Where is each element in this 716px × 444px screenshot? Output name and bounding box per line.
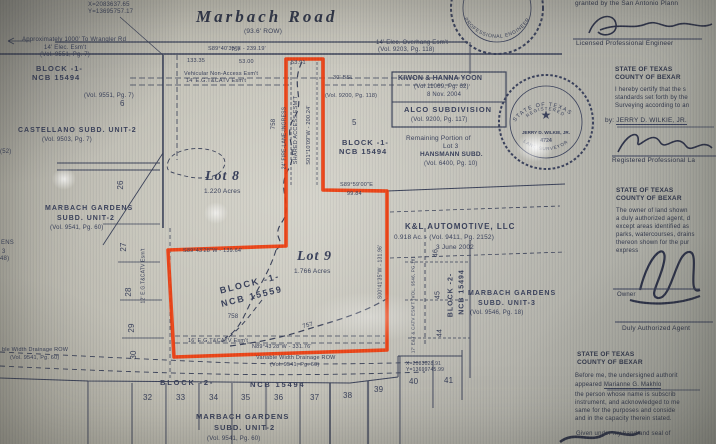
right-bearing: S00°41'35"W - 131.96' xyxy=(378,245,383,299)
lot-26-number: 26 xyxy=(117,180,125,189)
drainage-left-vol: (Vol. 9541, Pg. 60) xyxy=(10,356,59,362)
mg2-left-line1: MARBACH GARDENS xyxy=(45,205,133,212)
registered-surveyor-caption: Registered Professional La xyxy=(612,158,695,165)
remaining-line3: HANSMANN SUBD. xyxy=(420,152,483,159)
mg2-left-vol: (Vol. 9541, Pg. 60) xyxy=(50,225,104,231)
notch-dim: 99.84 xyxy=(347,192,362,198)
mid-bearing: S89°43'28"W - 139.64' xyxy=(183,249,242,255)
esmt-12-label: 12' E.G.T&CATV Esm't xyxy=(141,249,146,304)
lot-27-number: 27 xyxy=(120,242,128,251)
road-name: Marbach Road xyxy=(196,8,337,26)
lot-6-number: 6 xyxy=(120,100,125,108)
glare-spot-seal xyxy=(516,132,554,162)
road-row-width: (93.6' ROW) xyxy=(244,29,282,36)
owner-para-line1: The owner of land shown xyxy=(616,208,688,214)
surveyor-signature xyxy=(618,135,712,152)
wilkie-name: JERRY D. WILKIE, JR. xyxy=(616,117,687,125)
glare-spot-center xyxy=(204,202,228,224)
bsl-note: 30' BSL xyxy=(333,76,354,82)
remaining-line1: Remaining Portion of xyxy=(406,136,471,143)
block1-right-line2: NCB 15494 xyxy=(339,148,387,156)
mg3-line2: SUBD. UNIT-3 xyxy=(478,300,536,307)
owner-para-line5: thereon shown for the pur xyxy=(616,240,689,246)
block1-left-vol: (Vol. 9551, Pg. 7) xyxy=(84,93,134,99)
lot-30-number: 30 xyxy=(130,350,138,359)
notary-line3: the person whose name is subscrib xyxy=(575,392,676,398)
edge-fragment-4: 48) xyxy=(0,256,9,262)
by-label: by: xyxy=(605,117,614,124)
engineer-seal: REGISTERED PROFESSIONAL ENGINEER xyxy=(451,0,543,54)
certify-line1: I hereby certify that the s xyxy=(615,87,686,93)
castellano-vol: (Vol. 9503, Pg. 7) xyxy=(42,137,92,143)
block2-right-line1: BLOCK -2- xyxy=(447,273,454,317)
owner-signature xyxy=(630,251,700,303)
remaining-vol: (Vol. 6400, Pg. 10) xyxy=(424,161,478,167)
notary-line4: instrument, and acknowledged to me xyxy=(575,400,680,406)
certify-line3: Surveying according to an xyxy=(615,103,689,109)
block1-right-line1: BLOCK -1- xyxy=(342,139,389,147)
yoon-name: KIWON & HANNA YOON xyxy=(398,75,482,82)
owner-para-line6: express xyxy=(616,248,638,254)
owner-para-line2: a duly authorized agent, d xyxy=(616,216,690,222)
lot-34-number: 34 xyxy=(209,394,218,402)
vehicular-non-access-note: Vehicular Non-Access Esm't xyxy=(184,72,258,78)
notary-line5: same for the purposes and conside xyxy=(575,408,675,414)
lot-5-number: 5 xyxy=(352,119,357,127)
shared-access-esmt: SHARED ACCESS ESM'T xyxy=(294,96,300,164)
coord-top-y: Y=13695757.17 xyxy=(88,9,133,15)
lot8-acres: 1.220 Acres xyxy=(204,189,241,196)
block1-left-line1: BLOCK -1- xyxy=(36,65,83,73)
kl-date: 3 June 2002 xyxy=(436,245,474,252)
state-of-texas-3: STATE OF TEXAS xyxy=(577,352,634,359)
alco-vol: (Vol. 9200, Pg. 117) xyxy=(411,117,468,123)
glare-streak-bottom xyxy=(310,292,430,342)
owner-para-line4: parks, watercourses, drains xyxy=(616,232,695,238)
block2-bottom-line2: NCB 15494 xyxy=(250,381,305,389)
lot-45-number: 45 xyxy=(434,291,441,299)
state-of-texas-2: STATE OF TEXAS xyxy=(616,188,673,195)
state-of-texas-1: STATE OF TEXAS xyxy=(615,67,672,74)
lot-44-number: 44 xyxy=(436,329,443,337)
owner-caption: Owner xyxy=(617,292,636,298)
notary-line2: appeared Marianne G. Makhlo xyxy=(575,382,661,388)
glare-spot-left xyxy=(52,168,76,190)
wrangler-note: Approximately 1000' To Wrangler Rd xyxy=(22,37,126,43)
stem-dim: 53.91 xyxy=(291,61,306,67)
licensed-engineer-caption: Licensed Professional Engineer xyxy=(576,41,673,48)
egtcatv16-note: 16' E.G.T&CATV Esm't xyxy=(188,339,248,345)
edge-fragment-3: 3 xyxy=(2,249,6,255)
kl-vol: 0.918 Ac. - (Vol. 9411, Pg. 2152) xyxy=(394,235,494,242)
lot-29-number: 29 xyxy=(128,323,136,332)
block1-left-line2: NCB 15494 xyxy=(32,74,80,82)
county-of-bexar-3: COUNTY OF BEXAR xyxy=(577,360,643,367)
lot-33-number: 33 xyxy=(176,394,185,402)
drainage-left-note: ble Width Drainage ROW xyxy=(2,348,68,354)
lot-41-number: 41 xyxy=(444,377,453,385)
mg3-vol: (Vol. 9546, Pg. 18) xyxy=(470,310,524,316)
yoon-vol: (Vol 11069, Pg. 62) xyxy=(414,84,469,90)
edge-fragment-1: (52) xyxy=(0,149,11,155)
lot8-name: Lot 8 xyxy=(205,170,240,185)
elec-esmt-vol: (Vol. 9551, Pg. 7) xyxy=(40,52,90,58)
lot-38-number: 38 xyxy=(343,392,352,400)
mg2-bottom-line1: MARBACH GARDENS xyxy=(196,413,289,421)
road-dim-b: 53.00 xyxy=(239,60,254,66)
stem-bearing: S01°10'09"W - 200.24' xyxy=(307,105,313,164)
kl-name: K&L AUTOMOTIVE, LLC xyxy=(405,223,515,231)
county-of-bexar-1: COUNTY OF BEXAR xyxy=(615,75,681,82)
certify-line2: standards set forth by the xyxy=(615,95,688,101)
mg2-bottom-line2: SUBD. UNIT-2 xyxy=(214,424,275,432)
lot-32-number: 32 xyxy=(143,394,152,402)
overhang-vol: (Vol. 9203, Pg. 118) xyxy=(378,47,435,53)
notch-bearing: S89°59'00"E xyxy=(340,183,373,189)
appeared-label: appeared xyxy=(575,382,602,388)
road-dim-a: 133.35 xyxy=(187,59,205,65)
mg2-bottom-vol: (Vol. 9541, Pg. 60) xyxy=(207,436,261,442)
lot-35-number: 35 xyxy=(241,394,250,402)
alco-name: ALCO SUBDIVISION xyxy=(404,106,492,114)
contour-758-bottom: 758 xyxy=(228,314,239,320)
fire-lane-note: 24' FIRE-LANE-INGRESS xyxy=(282,107,287,169)
block2-right-line2: NCB 15494 xyxy=(458,269,465,315)
block2-bottom-line1: BLOCK -2- xyxy=(160,379,214,387)
contour-758-stem: 758 xyxy=(271,119,277,130)
svg-text:PROFESSIONAL ENGINEER: PROFESSIONAL ENGINEER xyxy=(462,17,531,40)
county-of-bexar-2: COUNTY OF BEXAR xyxy=(616,196,682,203)
egtcatv14-note: 14' E.G.T&CATV Esm't xyxy=(186,79,246,85)
road-contour-757: 757 xyxy=(231,48,241,54)
yoon-date: 8 Nov. 2004 xyxy=(427,92,461,98)
lot9-acres: 1.766 Acres xyxy=(294,269,331,276)
remaining-line2: Lot 3 xyxy=(443,144,458,151)
notary-line6: and in the capacity therein stated. xyxy=(575,416,672,422)
lot-28-number: 28 xyxy=(125,287,133,296)
star-icon: ★ xyxy=(541,108,552,122)
engineer-seal-bottom-text: PROFESSIONAL ENGINEER xyxy=(462,17,531,40)
mg2-left-line2: SUBD. UNIT-2 xyxy=(57,215,115,222)
mg3-line1: MARBACH GARDENS xyxy=(468,290,556,297)
lot-40-number: 40 xyxy=(409,378,418,386)
lot-39-number: 39 xyxy=(374,386,383,394)
vol9200-note: (Vol. 9200, Pg. 118) xyxy=(325,94,377,100)
owner-para-line3: except areas identified as xyxy=(616,224,689,230)
coord-bottom-y: Y=13699745.99 xyxy=(406,368,444,373)
lot9-name: Lot 9 xyxy=(297,250,332,265)
bottom-bearing: N89°43'28"W - 331.76' xyxy=(252,345,312,351)
overhang-note: 14' Elec. Overhang Esm't xyxy=(376,40,448,46)
edge-fragment-2: ENS xyxy=(1,240,14,246)
marianne-name: Marianne G. Makhlo xyxy=(604,382,662,389)
coord-top-x: X=2083637.65 xyxy=(88,2,130,8)
elec-esmt-note: 14' Elec. Esm't xyxy=(44,45,86,51)
survey-plat-photo: REGISTERED PROFESSIONAL ENGINEER STATE O… xyxy=(0,0,716,444)
lot-37-number: 37 xyxy=(310,394,319,402)
castellano-name: CASTELLANO SUBD. UNIT-2 xyxy=(18,127,137,134)
drainage-row-note: Variable Width Drainage ROW xyxy=(256,356,336,362)
notary-line1: Before me, the undersigned authorit xyxy=(575,373,678,379)
lot-46-number: 46 xyxy=(432,249,439,257)
lot-36-number: 36 xyxy=(274,394,283,402)
certify-by-line: by: JERRY D. WILKIE, JR. xyxy=(605,118,687,125)
duly-authorized-agent-caption: Duly Authorized Agent xyxy=(622,326,690,333)
engineer-signature xyxy=(589,17,712,35)
granted-note: granted by the San Antonio Plann xyxy=(575,1,678,8)
given-under-hand-line: Given under my hand and seal of xyxy=(576,431,671,437)
drainage-row-vol: (Vol. 9541, Pg. 60) xyxy=(270,363,319,369)
